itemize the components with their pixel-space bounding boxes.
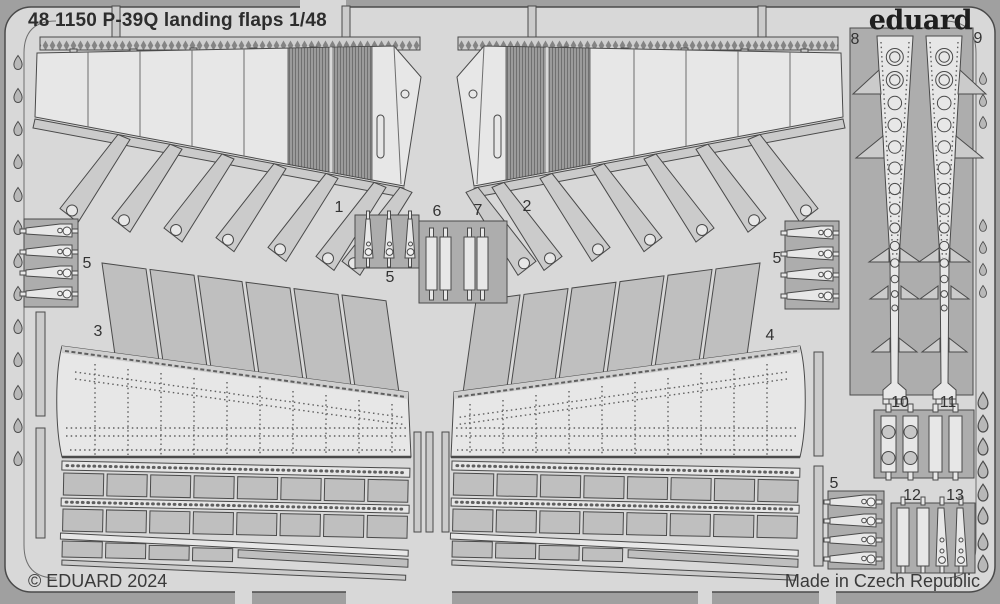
part-label-8: 8 <box>851 31 860 48</box>
part-5-group-right <box>781 221 839 309</box>
part-5-group-bottom <box>824 491 884 569</box>
made-in-text: Made in Czech Republic <box>785 571 980 591</box>
part-label-2: 2 <box>523 198 532 215</box>
part-5-group-left <box>20 219 78 307</box>
part-12-piece <box>897 508 909 566</box>
part-11-piece <box>929 416 942 472</box>
part-label-4: 4 <box>766 327 775 344</box>
part-11-piece <box>949 416 962 472</box>
part-label-12: 12 <box>903 487 921 504</box>
parts-12-13 <box>891 497 975 573</box>
part-label-5-right: 5 <box>773 250 782 267</box>
part-label-10: 10 <box>891 394 909 411</box>
part-label-11: 11 <box>940 394 957 411</box>
part-label-3: 3 <box>94 323 103 340</box>
part-label-7: 7 <box>474 202 483 219</box>
parts-10-11 <box>874 404 974 480</box>
part-label-13: 13 <box>946 487 964 504</box>
part-label-5-bottom: 5 <box>830 475 839 492</box>
sheet-title: 48 1150 P-39Q landing flaps 1/48 <box>28 10 327 31</box>
brand-logo: eduard <box>869 5 973 36</box>
copyright-text: © EDUARD 2024 <box>28 571 167 591</box>
parts-6-7 <box>419 221 507 303</box>
part-6-piece <box>440 237 451 290</box>
part-label-9: 9 <box>974 30 983 47</box>
fret-graphic: 1 2 3 4 5 5 5 5 6 7 8 9 10 11 12 13 48 1… <box>0 0 1000 604</box>
part-label-5-center: 5 <box>386 269 395 286</box>
part-label-6: 6 <box>433 203 442 220</box>
part-label-5-left: 5 <box>83 255 92 272</box>
part-7-piece <box>464 237 475 290</box>
part-12-piece <box>917 508 929 566</box>
parts-8-9-spars <box>850 28 986 404</box>
part-label-1: 1 <box>335 199 344 216</box>
part-6-piece <box>426 237 437 290</box>
pe-fret-sheet: 1 2 3 4 5 5 5 5 6 7 8 9 10 11 12 13 48 1… <box>0 0 1000 604</box>
part-7-piece <box>477 237 488 290</box>
part-5-group-center <box>355 211 419 268</box>
